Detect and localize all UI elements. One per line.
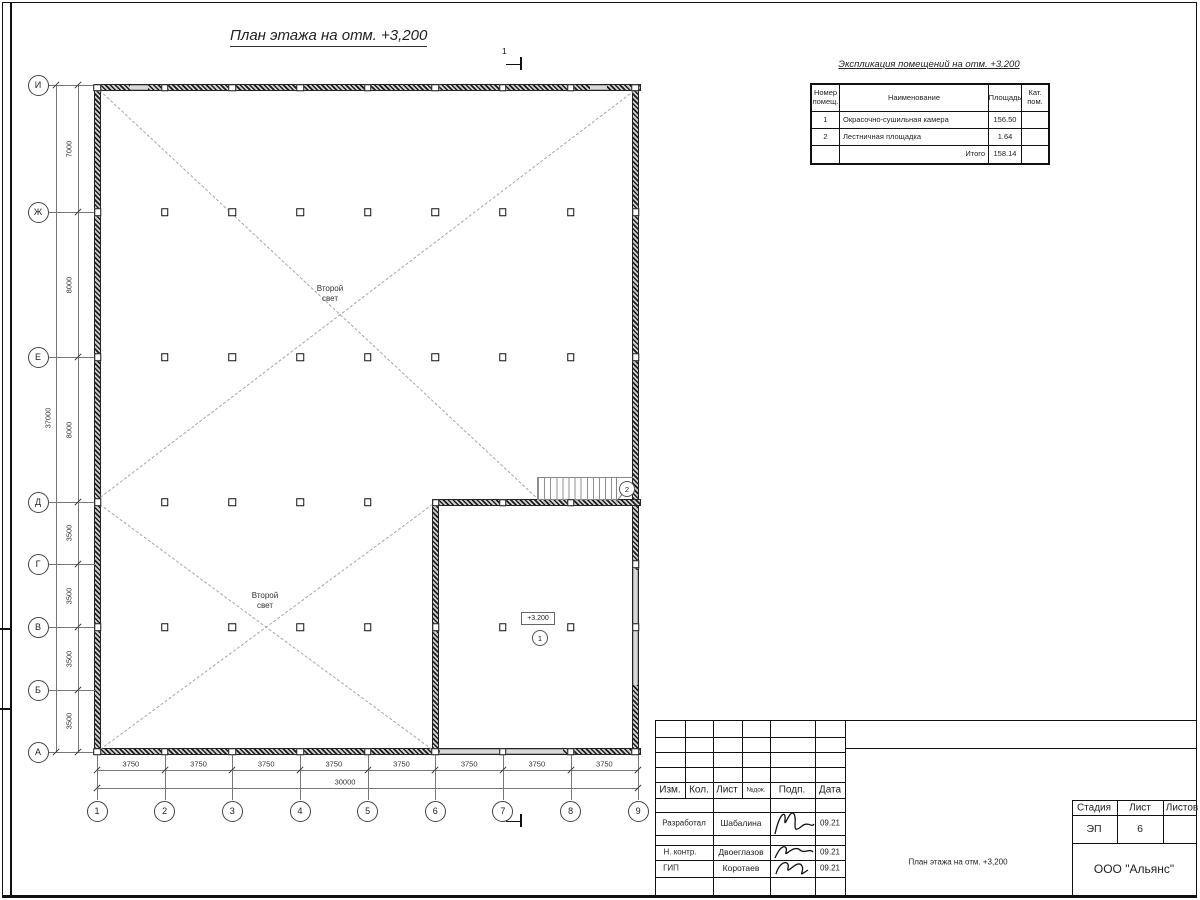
column bbox=[296, 748, 304, 756]
line bbox=[638, 754, 639, 800]
void-label-lower: Второй свет bbox=[252, 591, 278, 611]
void-label-upper: Второй свет bbox=[317, 284, 343, 304]
line bbox=[655, 737, 845, 738]
line bbox=[435, 754, 436, 800]
axis-row-b: Б bbox=[28, 680, 49, 701]
signature-razrabotal bbox=[772, 806, 816, 840]
line bbox=[845, 720, 846, 896]
tb-stage-value: ЭП bbox=[1086, 823, 1101, 835]
level-mark: +3.200 bbox=[521, 612, 555, 625]
dim-left-5: 3500 bbox=[65, 587, 74, 604]
column bbox=[364, 748, 372, 756]
line bbox=[655, 767, 845, 768]
line bbox=[655, 752, 845, 753]
column bbox=[296, 623, 304, 631]
line bbox=[1196, 2, 1197, 896]
axis-row-d: Д bbox=[28, 492, 49, 513]
dim-left-6: 3500 bbox=[65, 650, 74, 667]
line bbox=[655, 798, 845, 799]
tb-col-data: Дата bbox=[819, 785, 841, 796]
column bbox=[364, 353, 372, 361]
tb-date-1: 09.21 bbox=[820, 819, 840, 828]
line bbox=[655, 720, 1196, 721]
column bbox=[499, 353, 507, 361]
line bbox=[10, 2, 12, 895]
tb-col-list: Лист bbox=[716, 785, 738, 796]
expl-row2-cat bbox=[1022, 129, 1048, 146]
axis-col-1: 1 bbox=[87, 801, 108, 822]
column bbox=[499, 499, 507, 507]
line bbox=[655, 860, 845, 861]
line bbox=[2, 895, 1197, 898]
expl-total-label: Итого bbox=[840, 146, 989, 163]
axis-row-a: А bbox=[28, 742, 49, 763]
tb-name-korotaev: Коротаев bbox=[723, 863, 760, 873]
axis-col-4: 4 bbox=[290, 801, 311, 822]
column bbox=[94, 208, 102, 216]
line bbox=[655, 720, 656, 895]
column bbox=[161, 748, 169, 756]
line bbox=[655, 845, 845, 846]
tb-company: ООО "Альянс" bbox=[1094, 862, 1174, 876]
void-label-line1: Второй bbox=[252, 591, 278, 601]
line bbox=[1117, 800, 1118, 843]
line bbox=[165, 754, 166, 800]
column bbox=[432, 208, 440, 216]
column bbox=[499, 623, 507, 631]
dim-bottom-total: 30000 bbox=[335, 778, 356, 787]
dim-bottom-4: 3750 bbox=[325, 760, 342, 769]
void-label-line1: Второй bbox=[317, 284, 343, 294]
column bbox=[631, 84, 639, 92]
column bbox=[499, 208, 507, 216]
column bbox=[499, 748, 507, 756]
column bbox=[567, 84, 575, 92]
column bbox=[229, 748, 237, 756]
column bbox=[432, 623, 440, 631]
column bbox=[567, 353, 575, 361]
axis-row-i: И bbox=[28, 75, 49, 96]
expl-total-empty bbox=[812, 146, 840, 163]
tb-name-dvoeglazov: Двоеглазов bbox=[718, 847, 763, 857]
line bbox=[520, 814, 522, 827]
dim-bottom-1: 3750 bbox=[123, 760, 140, 769]
column bbox=[229, 208, 237, 216]
wall-left bbox=[95, 85, 100, 754]
tb-col-podp: Подп. bbox=[779, 785, 806, 796]
line bbox=[770, 720, 771, 896]
void-cross-line bbox=[100, 90, 634, 497]
stairs bbox=[537, 477, 617, 500]
line bbox=[0, 628, 10, 630]
drawing-sheet: План этажа на отм. +3,200 Экспликация по… bbox=[0, 0, 1200, 900]
dim-left-2: 8000 bbox=[65, 276, 74, 293]
line bbox=[300, 754, 301, 800]
column bbox=[94, 623, 102, 631]
axis-row-zh: Ж bbox=[28, 202, 49, 223]
expl-row1-cat bbox=[1022, 112, 1048, 129]
tb-col-izm: Изм. bbox=[659, 785, 680, 796]
column bbox=[432, 84, 440, 92]
line bbox=[713, 720, 714, 896]
dim-bottom-3: 3750 bbox=[258, 760, 275, 769]
room-number-1: 1 bbox=[532, 630, 548, 646]
line bbox=[1072, 800, 1196, 801]
axis-col-8: 8 bbox=[560, 801, 581, 822]
line bbox=[56, 85, 57, 752]
line bbox=[506, 821, 520, 822]
tb-col-ndok: №док. bbox=[746, 787, 765, 794]
axis-col-5: 5 bbox=[357, 801, 378, 822]
axis-col-2: 2 bbox=[154, 801, 175, 822]
line bbox=[1072, 800, 1073, 896]
axis-col-3: 3 bbox=[222, 801, 243, 822]
line bbox=[232, 754, 233, 800]
expl-total-cat bbox=[1022, 146, 1048, 163]
axis-col-6: 6 bbox=[425, 801, 446, 822]
tb-col-kol: Кол. bbox=[689, 785, 709, 796]
dim-left-7: 3500 bbox=[65, 713, 74, 730]
line bbox=[571, 754, 572, 800]
dim-left-3: 8000 bbox=[65, 421, 74, 438]
expl-total-value: 158.14 bbox=[989, 146, 1022, 163]
column bbox=[499, 84, 507, 92]
line bbox=[368, 754, 369, 800]
line bbox=[685, 720, 686, 798]
tb-doc-title: План этажа на отм. +3,200 bbox=[908, 858, 1007, 867]
section-mark-top: 1 bbox=[502, 46, 507, 56]
column bbox=[93, 748, 101, 756]
line bbox=[2, 2, 3, 896]
wall-interior-h bbox=[433, 500, 640, 505]
column bbox=[632, 560, 640, 568]
column bbox=[567, 748, 575, 756]
line bbox=[655, 835, 845, 836]
column bbox=[567, 208, 575, 216]
tb-date-3: 09.21 bbox=[820, 864, 840, 873]
column bbox=[631, 748, 639, 756]
column bbox=[567, 623, 575, 631]
line bbox=[1163, 800, 1164, 843]
line bbox=[97, 754, 98, 800]
dim-bottom-8: 3750 bbox=[596, 760, 613, 769]
axis-row-v: В bbox=[28, 617, 49, 638]
tb-sheet-value: 6 bbox=[1137, 823, 1143, 835]
line bbox=[97, 788, 638, 789]
expl-header-area: Площадь bbox=[989, 85, 1022, 112]
expl-header-name: Наименование bbox=[840, 85, 989, 112]
explication-table: Номер помещ. Наименование Площадь Кат. п… bbox=[810, 83, 1050, 165]
expl-row2-num: 2 bbox=[812, 129, 840, 146]
tb-date-2: 09.21 bbox=[820, 848, 840, 857]
column bbox=[161, 623, 169, 631]
line bbox=[655, 782, 845, 783]
dim-bottom-2: 3750 bbox=[190, 760, 207, 769]
line bbox=[506, 64, 520, 65]
dim-left-4: 3500 bbox=[65, 525, 74, 542]
column bbox=[632, 623, 640, 631]
expl-row2-area: 1.64 bbox=[989, 129, 1022, 146]
void-label-line2: свет bbox=[252, 601, 278, 611]
line bbox=[655, 877, 845, 878]
window-opening bbox=[130, 85, 148, 90]
column bbox=[94, 498, 102, 506]
column bbox=[229, 498, 237, 506]
tb-role-nkontr: Н. контр. bbox=[663, 848, 696, 857]
line bbox=[0, 708, 10, 710]
column bbox=[432, 499, 440, 507]
axis-col-7: 7 bbox=[492, 801, 513, 822]
dim-bottom-7: 3750 bbox=[528, 760, 545, 769]
page-title: План этажа на отм. +3,200 bbox=[230, 27, 427, 47]
tb-name-shabalina: Шабалина bbox=[720, 818, 761, 828]
axis-row-g: Г bbox=[28, 554, 49, 575]
tb-role-razrabotal: Разработал bbox=[662, 819, 706, 828]
axis-col-9: 9 bbox=[628, 801, 649, 822]
column bbox=[632, 353, 640, 361]
column bbox=[432, 748, 440, 756]
expl-header-cat: Кат. пом. bbox=[1022, 85, 1048, 112]
dim-bottom-6: 3750 bbox=[461, 760, 478, 769]
line bbox=[1072, 843, 1196, 844]
column bbox=[161, 84, 169, 92]
room-number-2: 2 bbox=[619, 481, 635, 497]
expl-row1-num: 1 bbox=[812, 112, 840, 129]
column bbox=[94, 353, 102, 361]
axis-row-e: Е bbox=[28, 347, 49, 368]
dim-left-1: 7000 bbox=[65, 140, 74, 157]
column bbox=[296, 84, 304, 92]
line bbox=[845, 748, 1196, 749]
tb-role-gip: ГИП bbox=[663, 864, 679, 873]
column bbox=[296, 498, 304, 506]
line bbox=[742, 720, 743, 798]
expl-header-num: Номер помещ. bbox=[812, 85, 840, 112]
column bbox=[364, 208, 372, 216]
column bbox=[229, 84, 237, 92]
column bbox=[296, 208, 304, 216]
line bbox=[503, 754, 504, 800]
expl-row2-name: Лестничная площадка bbox=[840, 129, 989, 146]
column bbox=[364, 623, 372, 631]
window-opening bbox=[590, 85, 607, 90]
column bbox=[93, 84, 101, 92]
column bbox=[296, 353, 304, 361]
line bbox=[78, 85, 79, 752]
dim-bottom-5: 3750 bbox=[393, 760, 410, 769]
tb-stage-header: Стадия bbox=[1077, 802, 1111, 813]
column bbox=[229, 623, 237, 631]
line bbox=[537, 477, 633, 478]
void-label-line2: свет bbox=[317, 294, 343, 304]
column bbox=[632, 208, 640, 216]
explication-title: Экспликация помещений на отм. +3.200 bbox=[805, 59, 1053, 70]
signature-gip bbox=[772, 856, 816, 880]
line bbox=[2, 2, 1197, 3]
tb-sheet-header: Лист bbox=[1129, 802, 1151, 813]
column bbox=[161, 208, 169, 216]
expl-row1-area: 156.50 bbox=[989, 112, 1022, 129]
column bbox=[161, 498, 169, 506]
column bbox=[364, 84, 372, 92]
line bbox=[1072, 815, 1196, 816]
line bbox=[655, 812, 845, 813]
column bbox=[229, 353, 237, 361]
column bbox=[161, 353, 169, 361]
expl-row1-name: Окрасочно-сушильная камера bbox=[840, 112, 989, 129]
column bbox=[567, 499, 575, 507]
column bbox=[432, 353, 440, 361]
column bbox=[364, 498, 372, 506]
line bbox=[520, 57, 522, 70]
dim-left-total: 37000 bbox=[44, 408, 53, 429]
tb-sheets-header: Листов bbox=[1166, 802, 1199, 813]
